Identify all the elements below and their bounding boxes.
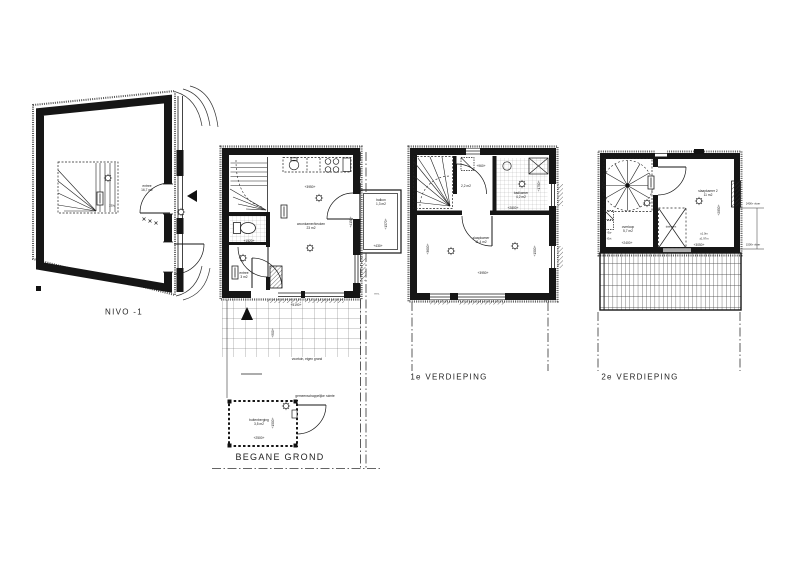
meter-note: m.v.	[545, 299, 550, 302]
toilet-icon	[234, 223, 241, 234]
height-note: ±1.0m	[700, 232, 707, 235]
dimension: +4150+	[349, 217, 353, 228]
dimension: +1500+	[271, 418, 275, 429]
room-area: 16,7 m2	[141, 188, 153, 192]
dimension: +5190+	[291, 303, 302, 307]
service-note: -Evt	[607, 237, 612, 240]
dimension: +3950+	[478, 271, 489, 275]
light-fixture-icon	[282, 402, 290, 410]
light-fixture-icon	[104, 174, 112, 182]
room-label-berging: buitenberging 3,5 m2	[249, 418, 269, 426]
room-label-entree-bg: entree 3 m2	[239, 271, 248, 279]
entree-partition	[238, 245, 282, 290]
roof-terrace	[600, 253, 741, 310]
light-fixture-icon	[315, 194, 323, 202]
room-area: 4,2 m2	[514, 195, 528, 199]
door-swing	[457, 164, 493, 246]
window	[353, 255, 366, 283]
dimension: +1500+	[533, 246, 537, 257]
window	[466, 149, 480, 156]
light-fixture-icon	[695, 197, 703, 205]
direction-arrow-icon	[187, 190, 197, 202]
room-area: 11,4 m2	[473, 240, 490, 244]
architectural-drawing-sheet: entree 16,7 m2 230v NIVO -1 woonkamer/ke…	[0, 0, 800, 562]
staircase	[414, 157, 453, 209]
light-fixture-icon	[239, 254, 247, 262]
exterior-wall	[603, 156, 737, 250]
room-label-badkamer: badkamer 4,2 m2	[514, 191, 528, 199]
room-area: 5,7 m2	[622, 229, 634, 233]
service-note: -Ew	[607, 231, 612, 234]
room-label-slaapkamer2: slaapkamer 2 11 m2	[698, 189, 717, 197]
room-label-balkon: balkon 1,3 m2	[376, 198, 386, 206]
room-area: 11 m2	[698, 193, 717, 197]
first-floor-plan	[409, 147, 564, 305]
communal-note: gemeenschappelijke ruimte	[295, 394, 334, 398]
room-label-overloop: overloop 5,7 m2	[622, 225, 634, 233]
radiator-icon	[281, 205, 287, 218]
meter-note: m.v.	[375, 292, 380, 295]
corridor-wall	[177, 96, 184, 292]
floor-level-note: 2400+ vloer	[746, 202, 760, 205]
door-swing	[658, 167, 686, 195]
dimension: +1750+	[537, 181, 541, 192]
kitchen-counter	[283, 158, 351, 173]
fitting-marks	[143, 218, 158, 225]
plan-title-begane-grond: BEGANE GROND	[235, 452, 324, 462]
dimension: +1520+	[244, 239, 255, 243]
dimension: +3950+	[305, 185, 316, 189]
light-fixture-icon	[643, 199, 651, 207]
dimension: +900+	[271, 328, 275, 337]
room-area: 23 m2	[297, 226, 325, 230]
door-swing	[297, 405, 326, 434]
chimney-marker	[694, 149, 704, 154]
column-marker	[36, 286, 41, 291]
floor-level-note: 1500+ vloer	[746, 243, 760, 246]
nivo-1-plan	[33, 86, 218, 300]
wall-window-hatched	[732, 181, 741, 207]
dimension: +2500+	[254, 436, 265, 440]
light-fixture-icon	[306, 244, 314, 252]
staircase	[230, 157, 268, 212]
radiator-icon	[232, 266, 238, 279]
plan-title-nivo1: NIVO -1	[105, 308, 143, 317]
dimension: +3600+	[426, 244, 430, 255]
light-fixture-icon	[518, 180, 526, 188]
room-label-woonkamer: woonkamer/keuken 23 m2	[297, 222, 325, 230]
hall-area-label: 2,2 m2	[461, 184, 471, 188]
outlet-label: 230v	[109, 204, 115, 207]
stove-icon	[325, 159, 331, 165]
height-note: ±1.97m	[700, 237, 709, 240]
window	[549, 246, 563, 268]
dimension: +960+	[476, 164, 485, 168]
light-fixture-icon	[447, 247, 455, 255]
room-area: 1,3 m2	[376, 202, 386, 206]
room-label-slaapkamer: slaapkamer 11,4 m2	[473, 236, 490, 244]
dimension: +2400+	[622, 241, 633, 245]
window	[430, 292, 450, 305]
radiator-icon	[648, 176, 654, 189]
begane-grond-plan	[221, 147, 402, 448]
window	[549, 184, 563, 206]
tiled-terrace	[222, 299, 361, 358]
room-label-entree-nivo1: entree 16,7 m2	[141, 184, 153, 192]
plan-title-verdieping2: 2e VERDIEPING	[601, 373, 678, 382]
roof-window-label: dakraam	[666, 225, 677, 228]
dimension: +3050+	[694, 243, 705, 247]
window	[458, 292, 505, 305]
floor-plan-linework	[0, 0, 800, 562]
room-area: 3,5 m2	[249, 422, 269, 426]
light-fixture-icon	[177, 208, 185, 216]
dimension: +2850+	[717, 205, 721, 216]
radiator-icon	[97, 192, 103, 205]
shed	[228, 400, 327, 448]
dimension: +430+	[373, 244, 382, 248]
room-area: 3 m2	[239, 275, 248, 279]
garden-note: voortuin, eigen grond	[292, 357, 322, 361]
dimension: +1570+	[384, 219, 388, 230]
balcony-door	[327, 193, 361, 219]
dimension: +2800+	[508, 206, 519, 210]
light-fixture-icon	[511, 242, 519, 250]
plan-title-verdieping1: 1e VERDIEPING	[410, 373, 487, 382]
